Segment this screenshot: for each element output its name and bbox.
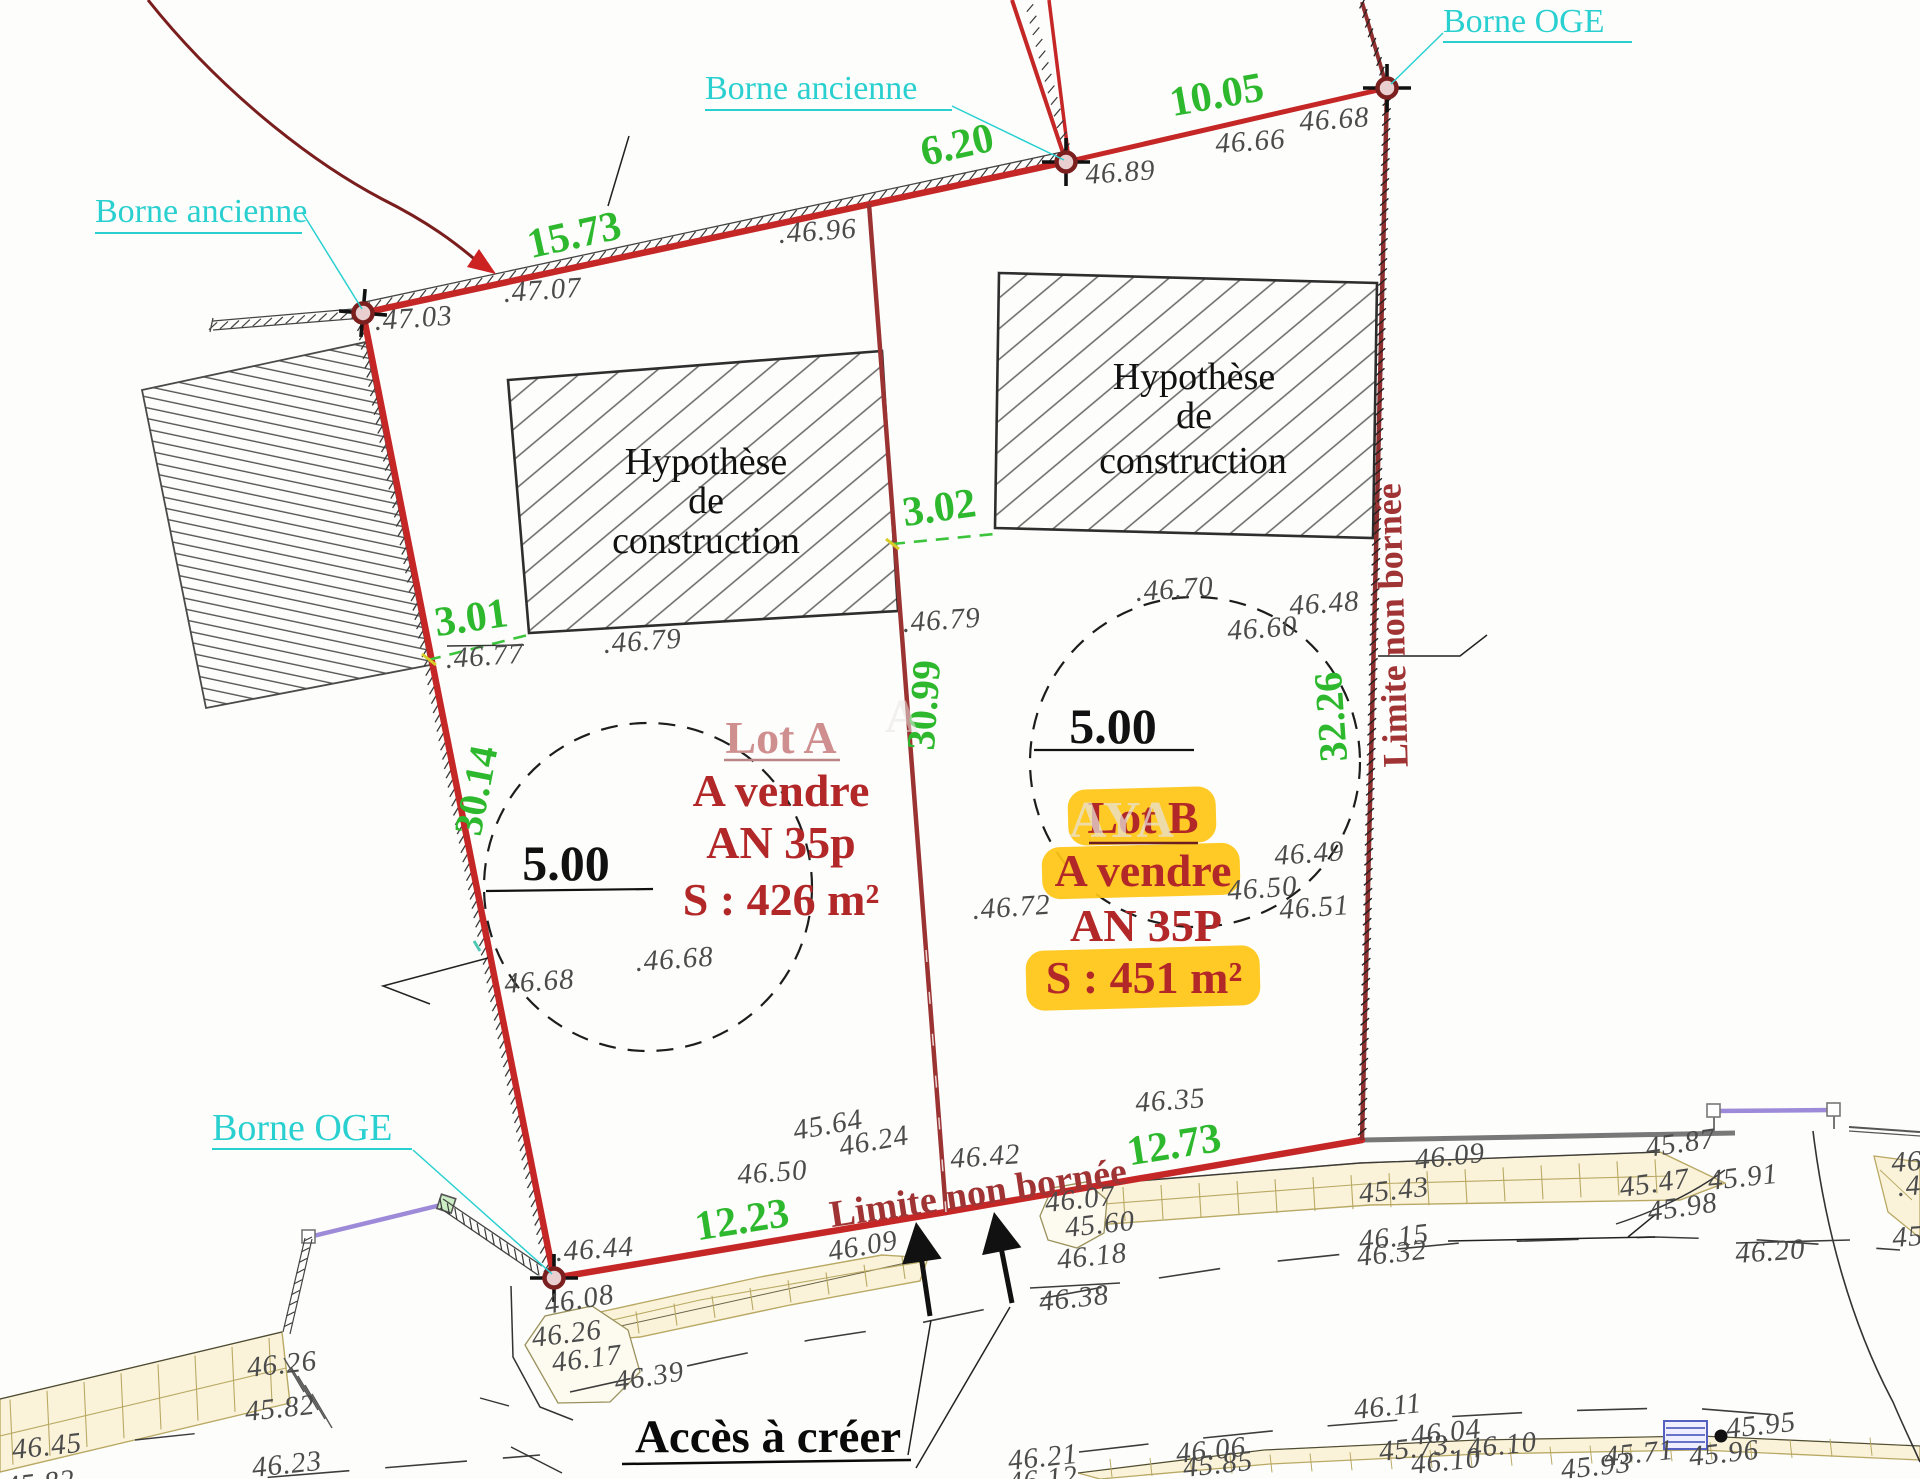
svg-text:Lot A: Lot A — [725, 712, 836, 763]
svg-text:5.00: 5.00 — [1069, 698, 1157, 754]
svg-text:.45.: .45. — [1896, 1168, 1920, 1203]
svg-text:46.51: 46.51 — [1278, 889, 1350, 926]
svg-text:.47.07: .47.07 — [502, 272, 583, 309]
svg-text:46.50: 46.50 — [736, 1154, 808, 1191]
svg-text:construction: construction — [612, 520, 800, 562]
svg-text:Limite non bornée: Limite non bornée — [1368, 483, 1415, 768]
svg-text:AYA: AYA — [1069, 792, 1175, 849]
svg-text:46.49: 46.49 — [1273, 835, 1345, 872]
svg-text:S : 426 m²: S : 426 m² — [683, 874, 880, 925]
svg-text:.46.79: .46.79 — [901, 602, 982, 639]
svg-text:de: de — [688, 480, 724, 522]
svg-text:.47.03: .47.03 — [373, 300, 454, 337]
svg-text:Hypothèse: Hypothèse — [1113, 356, 1276, 398]
svg-text:S : 451 m²: S : 451 m² — [1046, 952, 1243, 1003]
svg-text:.46.68: .46.68 — [634, 941, 715, 978]
svg-text:A vendre: A vendre — [1055, 845, 1232, 896]
svg-text:.46.70: .46.70 — [1134, 571, 1215, 608]
svg-text:de: de — [1176, 395, 1212, 437]
svg-text:Hypothèse: Hypothèse — [625, 441, 788, 483]
svg-text:46.68: 46.68 — [1298, 101, 1370, 138]
svg-text:.46.72: .46.72 — [971, 889, 1052, 926]
svg-text:46.60: 46.60 — [1226, 610, 1298, 647]
svg-text:A vendre: A vendre — [693, 765, 870, 816]
svg-text:46.66: 46.66 — [1214, 123, 1286, 160]
svg-text:Borne OGE: Borne OGE — [212, 1107, 392, 1149]
svg-text:46.89: 46.89 — [1084, 154, 1156, 191]
svg-text:32.26: 32.26 — [1305, 670, 1356, 763]
svg-text:.46.96: .46.96 — [777, 213, 858, 250]
svg-text:A: A — [885, 690, 920, 743]
svg-text:46.20: 46.20 — [1734, 1233, 1806, 1270]
svg-text:Borne ancienne: Borne ancienne — [95, 193, 307, 230]
svg-text:46.42: 46.42 — [949, 1138, 1021, 1175]
svg-text:Accès à créer: Accès à créer — [635, 1411, 901, 1463]
svg-text:.46.79: .46.79 — [602, 623, 683, 660]
svg-text:Borne OGE: Borne OGE — [1443, 3, 1604, 40]
svg-text:construction: construction — [1099, 440, 1287, 482]
svg-text:45.: 45. — [1891, 1219, 1920, 1254]
svg-text:Borne ancienne: Borne ancienne — [705, 70, 917, 107]
svg-text:46.10: 46.10 — [1409, 1442, 1482, 1479]
svg-text:AN 35p: AN 35p — [706, 817, 856, 868]
svg-text:AN 35P: AN 35P — [1070, 900, 1222, 951]
svg-text:5.00: 5.00 — [522, 835, 610, 891]
svg-text:46.48: 46.48 — [1288, 585, 1360, 622]
svg-text:46.35: 46.35 — [1134, 1082, 1206, 1119]
svg-text:.46.77: .46.77 — [444, 638, 525, 675]
svg-text:46.68: 46.68 — [503, 963, 575, 1000]
svg-text:.46.44: .46.44 — [554, 1231, 635, 1268]
